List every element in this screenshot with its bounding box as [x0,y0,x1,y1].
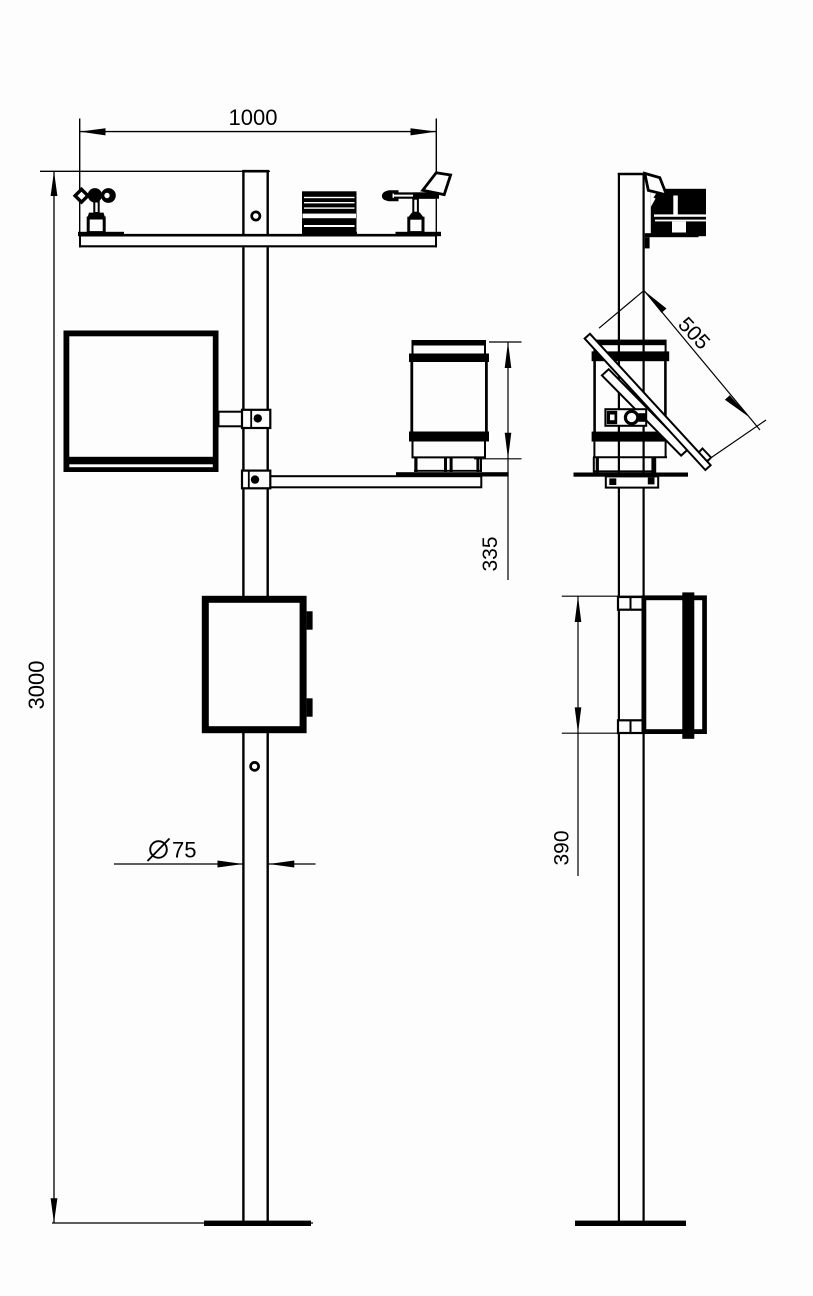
svg-text:75: 75 [172,838,196,863]
svg-text:1000: 1000 [229,105,278,130]
svg-text:335: 335 [479,536,502,571]
svg-text:390: 390 [551,830,574,865]
svg-text:3000: 3000 [24,661,49,710]
